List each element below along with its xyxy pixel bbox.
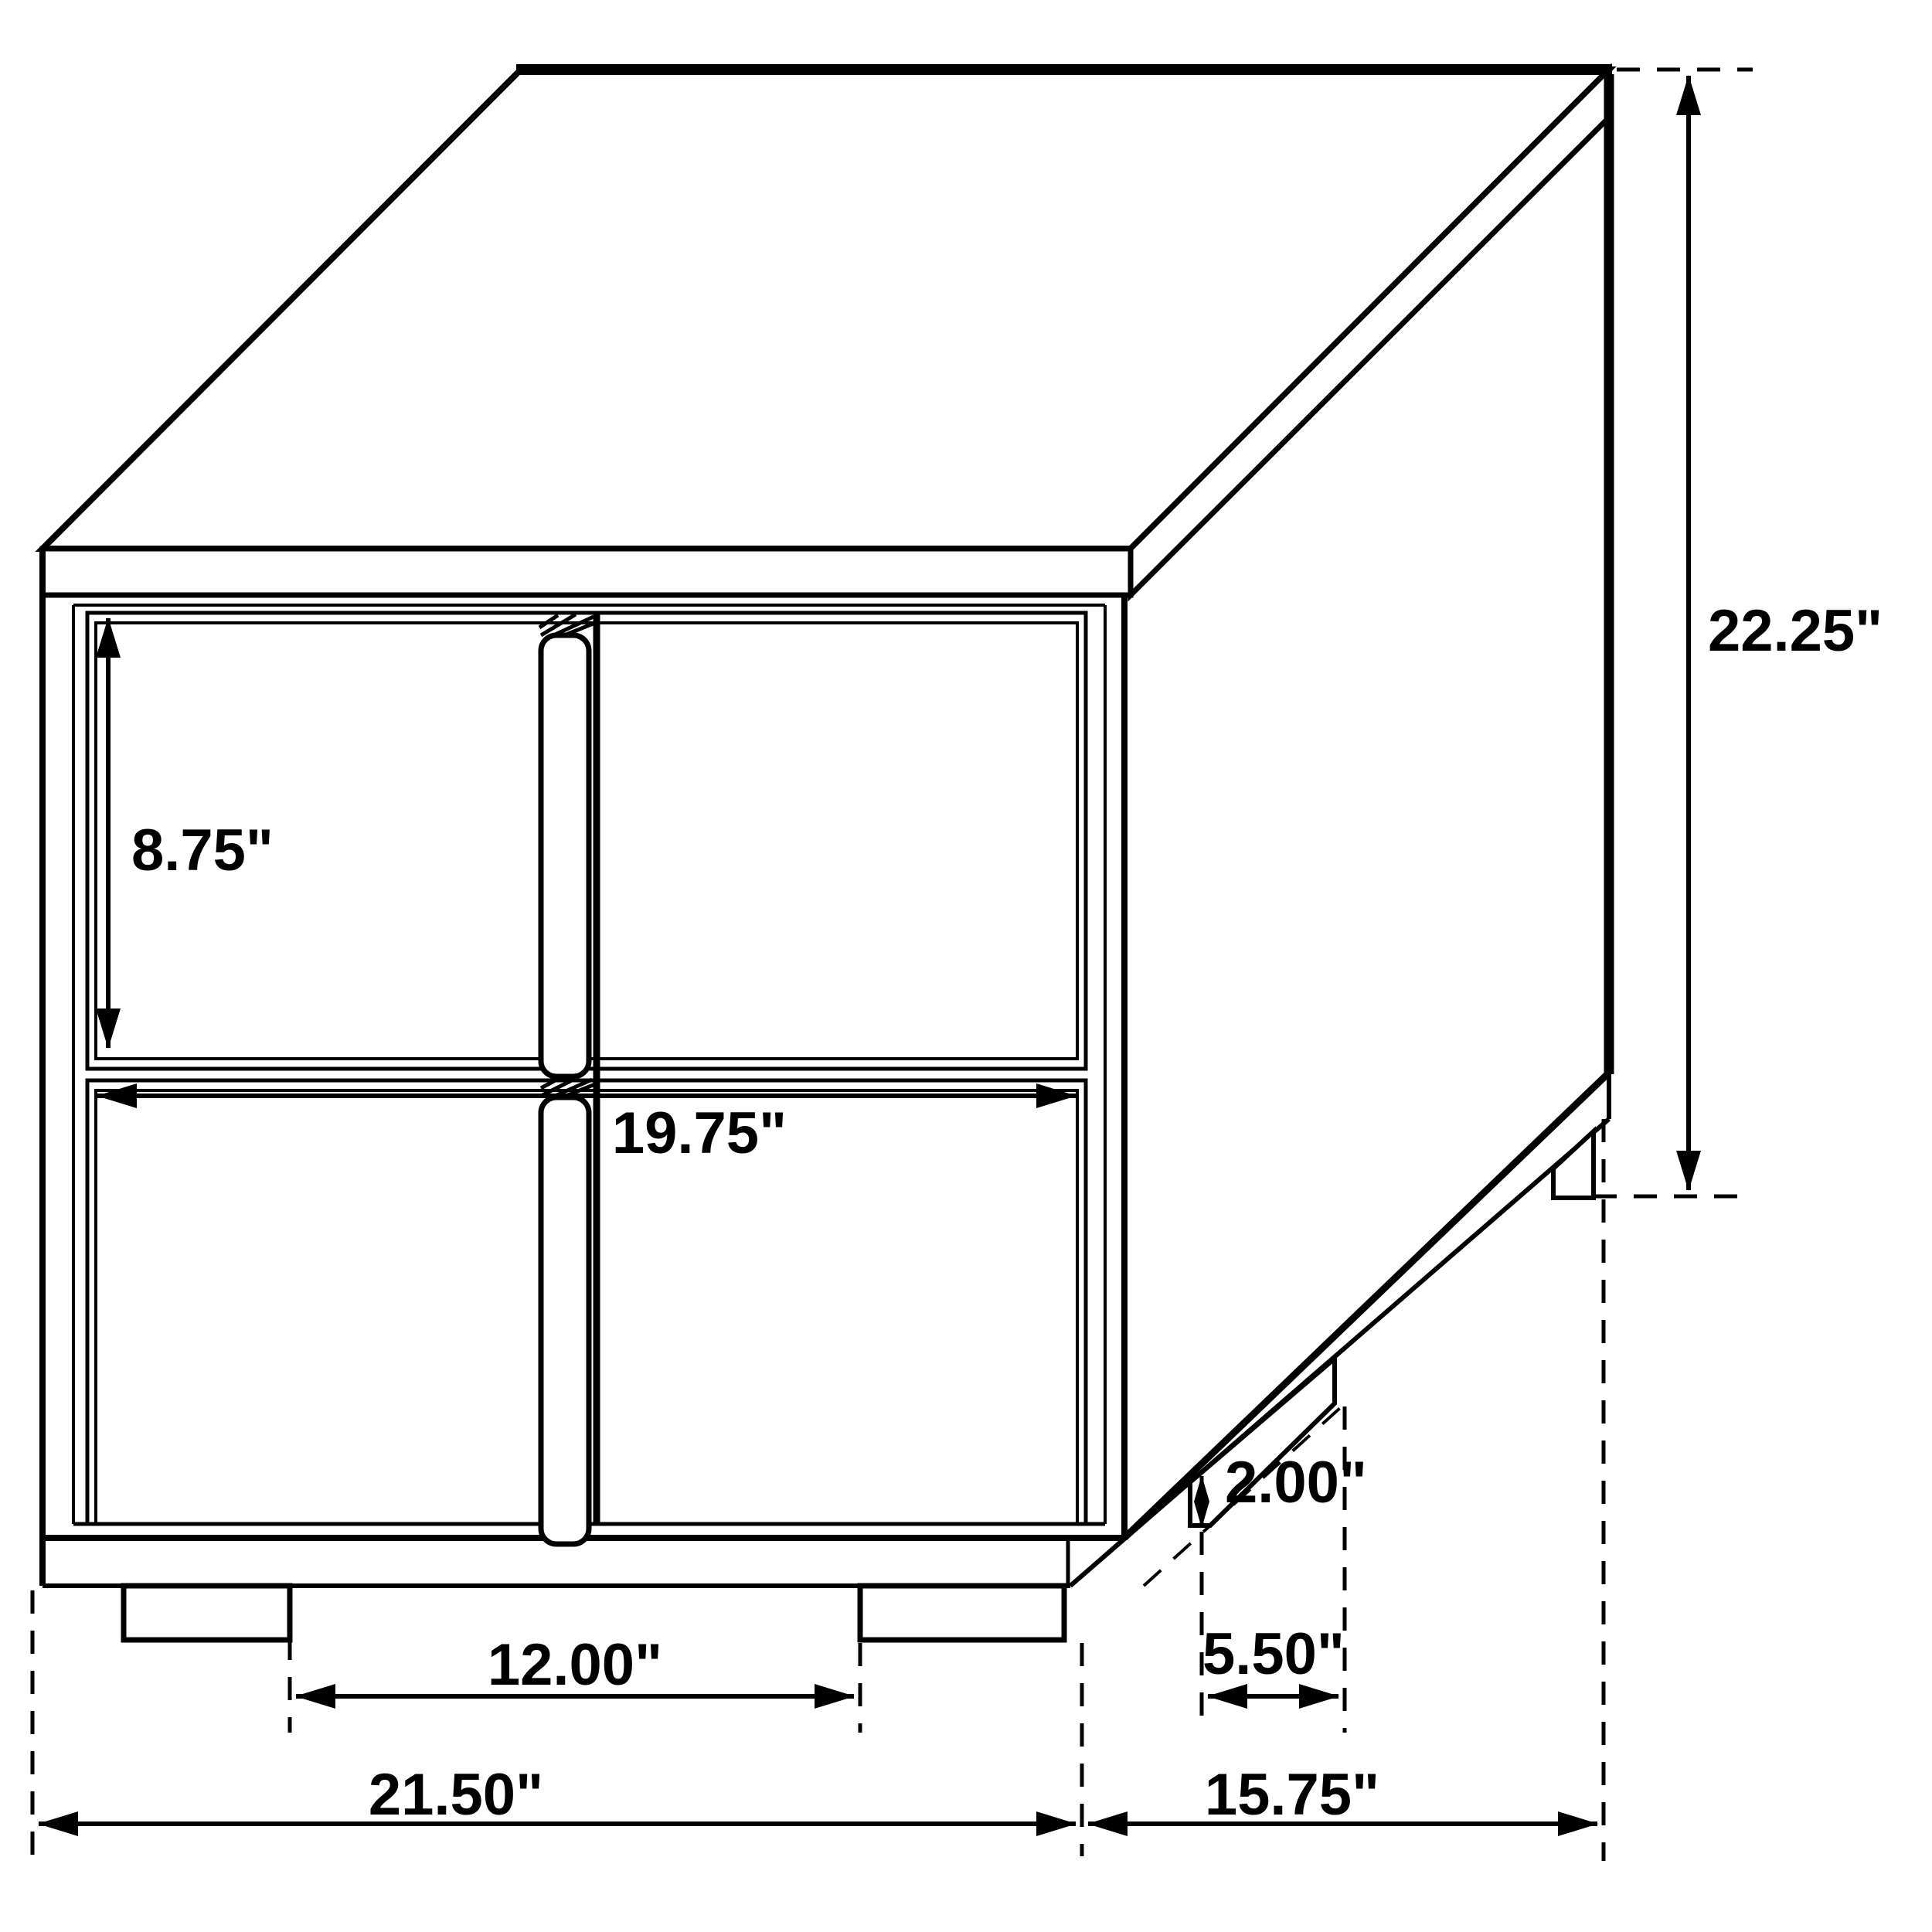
front-foot-right	[860, 1586, 1064, 1640]
top-face	[43, 70, 1612, 595]
upper-drawer-handle	[541, 635, 589, 1077]
diagram-canvas: 8.75" 19.75" 22.25" 2.00" 5.50" 12.00" 2…	[0, 0, 1932, 1932]
dim-front-foot-spacing: 12.00"	[296, 1632, 854, 1698]
dim-label-drawer-height: 8.75"	[131, 818, 274, 883]
dim-overall-height: 22.25"	[1689, 76, 1883, 1190]
dim-label-foot-height: 2.00"	[1225, 1450, 1367, 1515]
dim-overall-depth: 15.75"	[1088, 1762, 1597, 1828]
dim-side-foot-spacing: 5.50"	[1202, 1621, 1345, 1696]
dim-label-overall-height: 22.25"	[1708, 598, 1883, 664]
side-foot-rear	[1553, 1131, 1594, 1198]
dim-label-overall-width: 21.50"	[369, 1762, 543, 1828]
dim-label-overall-depth: 15.75"	[1205, 1762, 1379, 1828]
dim-overall-width: 21.50"	[39, 1762, 1076, 1828]
dim-label-side-foot-spacing: 5.50"	[1202, 1621, 1345, 1687]
top-slab-front-band	[43, 549, 1131, 595]
lower-drawer-handle	[541, 1097, 589, 1544]
front-foot-left	[124, 1586, 290, 1640]
side-plinth	[1068, 1119, 1609, 1586]
cabinet	[43, 70, 1612, 1640]
dim-label-drawer-width: 19.75"	[612, 1100, 787, 1166]
dim-label-front-foot-spacing: 12.00"	[488, 1632, 662, 1698]
dim-foot-height: 2.00"	[1202, 1450, 1367, 1527]
nightstand-dimension-diagram: 8.75" 19.75" 22.25" 2.00" 5.50" 12.00" 2…	[0, 0, 1932, 1932]
